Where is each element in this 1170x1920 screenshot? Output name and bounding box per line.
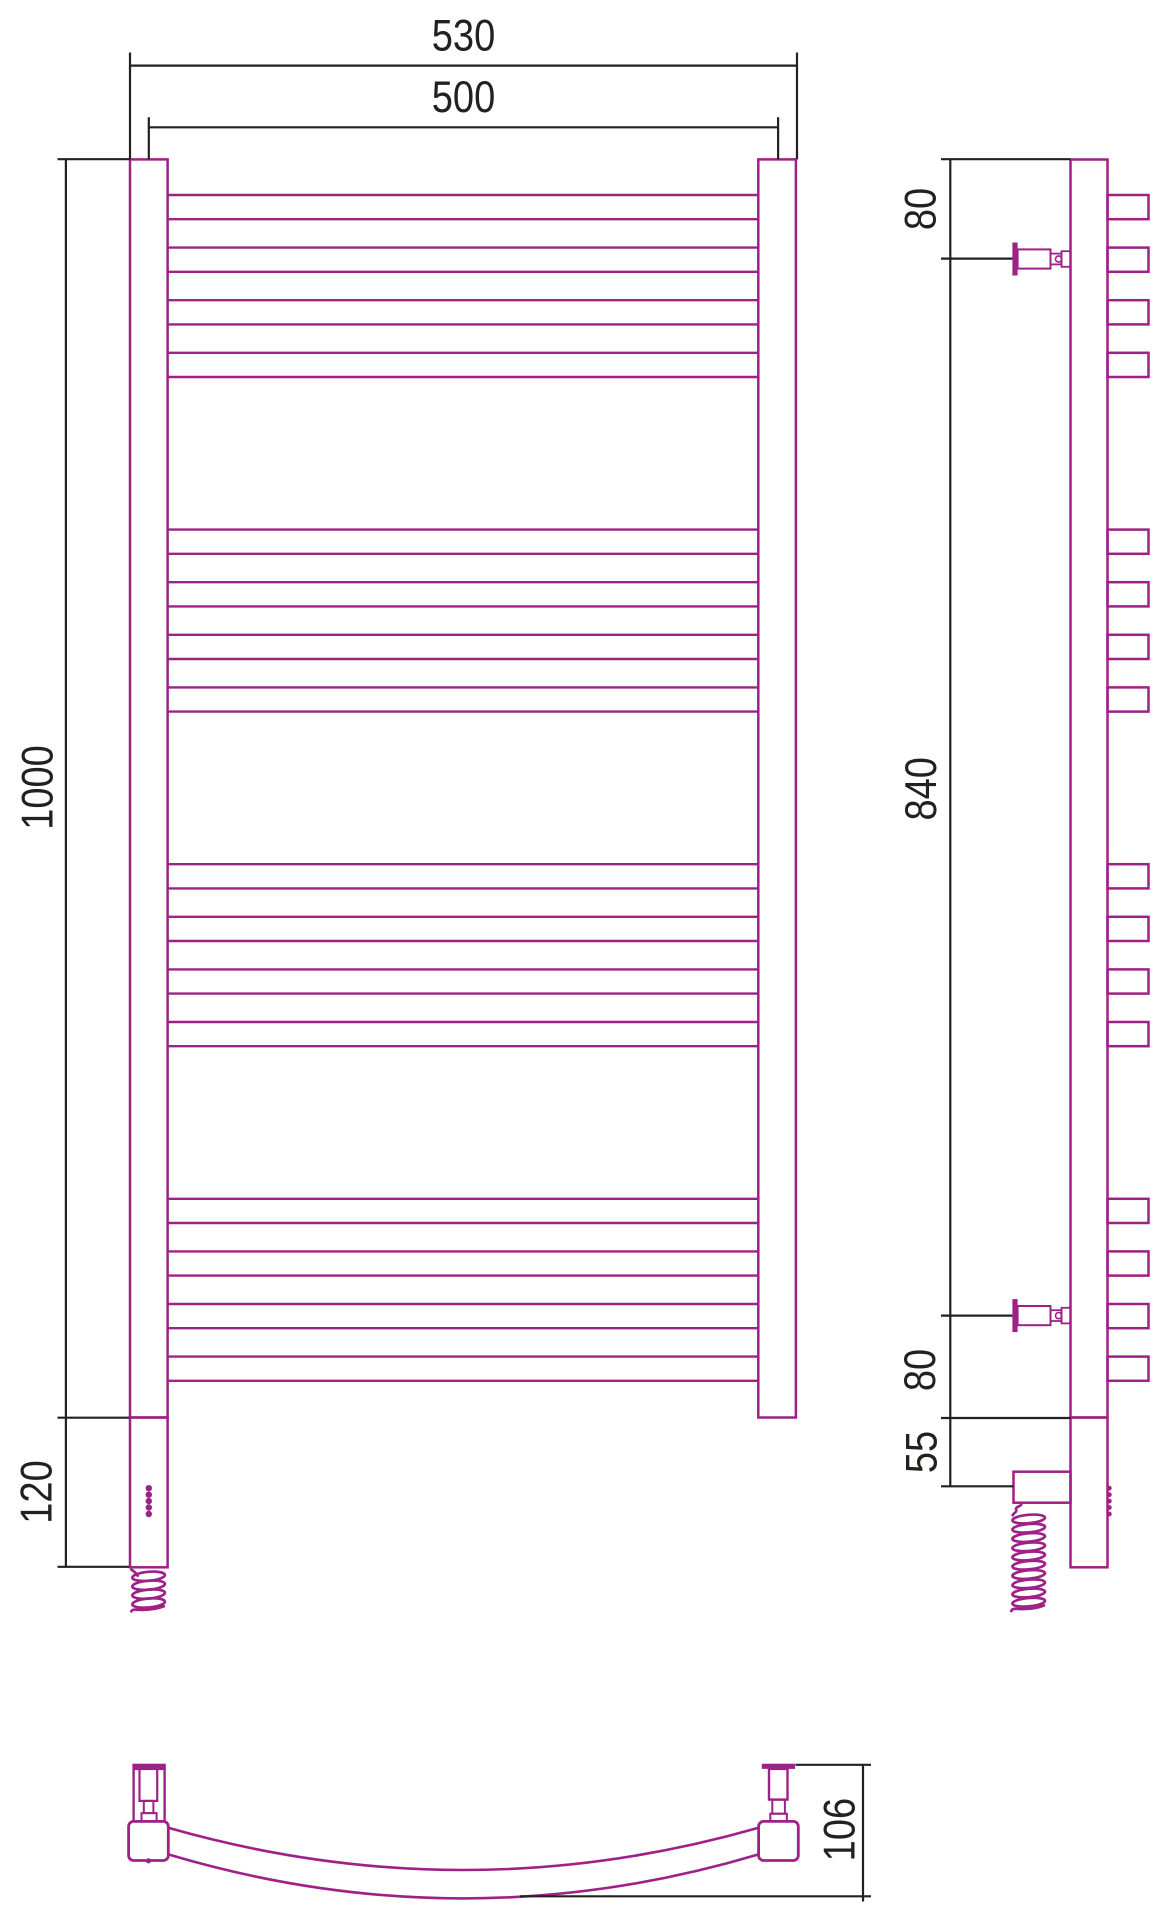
svg-text:55: 55 <box>897 1431 946 1473</box>
svg-text:1000: 1000 <box>13 745 62 830</box>
svg-text:500: 500 <box>432 72 495 121</box>
svg-text:80: 80 <box>895 1349 944 1391</box>
svg-text:840: 840 <box>896 757 945 820</box>
svg-text:106: 106 <box>815 1798 864 1861</box>
svg-text:530: 530 <box>432 11 495 60</box>
svg-text:80: 80 <box>896 188 945 230</box>
svg-text:120: 120 <box>12 1460 61 1523</box>
